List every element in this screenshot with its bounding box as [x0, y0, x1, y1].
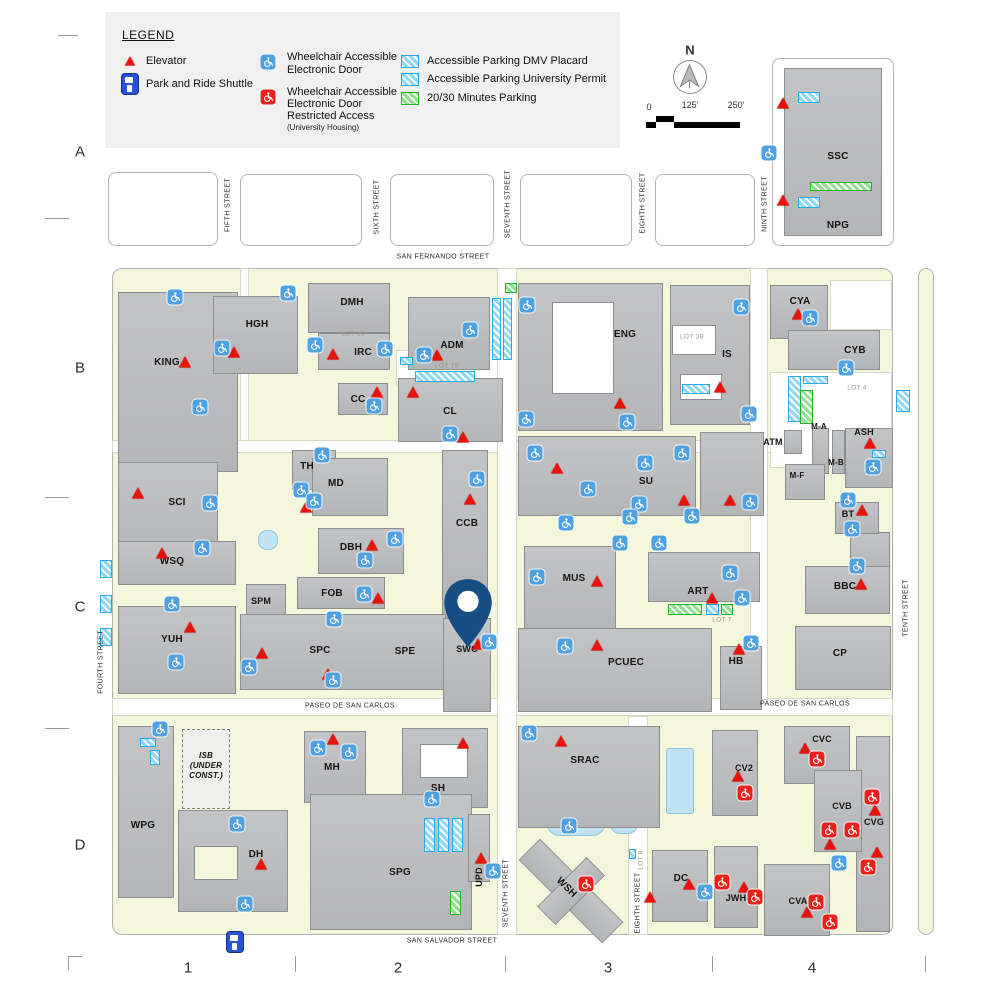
lot-label: LOT 3B — [680, 334, 704, 341]
building-label-ash: ASH — [854, 427, 874, 437]
street-block — [655, 174, 755, 246]
accessible-parking-hatch — [100, 560, 112, 578]
compass-north-label: N — [685, 43, 694, 58]
building — [518, 628, 712, 712]
courtyard — [552, 302, 614, 394]
building-label-dmh: DMH — [340, 298, 363, 308]
street-label: SIXTH STREET — [374, 180, 381, 235]
elevator-icon — [132, 488, 144, 499]
building-label-cvb: CVB — [832, 801, 852, 811]
wheelchair-accessible-icon — [486, 864, 501, 879]
elevator-icon — [228, 347, 240, 358]
elevator-icon — [407, 387, 419, 398]
street-label: EIGHTH STREET — [635, 872, 642, 933]
wheelchair-accessible-icon — [734, 300, 749, 315]
wheelchair-accessible-icon — [803, 311, 818, 326]
street-label: SEVENTH STREET — [503, 859, 510, 927]
street-block — [390, 174, 494, 246]
elevator-icon — [371, 387, 383, 398]
accessible-parking-hatch — [452, 818, 463, 852]
street-label: SAN SALVADOR STREET — [407, 938, 498, 945]
elevator-icon — [475, 853, 487, 864]
timed-parking-hatch — [800, 390, 813, 424]
building-label-cya: CYA — [790, 297, 811, 307]
elevator-icon — [706, 593, 718, 604]
legend-parking-2030: 20/30 Minutes Parking — [427, 92, 536, 104]
street-label: NINTH STREET — [762, 176, 769, 232]
legend-wc-door-1: Wheelchair Accessible — [287, 51, 397, 63]
wheelchair-accessible-icon — [735, 591, 750, 606]
wheelchair-accessible-icon — [839, 361, 854, 376]
wheelchair-accessible-icon — [281, 286, 296, 301]
wheelchair-accessible-icon — [723, 566, 738, 581]
wheelchair-accessible-icon — [367, 399, 382, 414]
street-label: PASEO DE SAN CARLOS — [760, 701, 850, 708]
scale-bar — [656, 116, 674, 122]
street-label: SEVENTH STREET — [505, 170, 512, 238]
elevator-icon — [327, 349, 339, 360]
accessible-parking-hatch — [706, 604, 719, 615]
building-label-cp: CP — [833, 649, 847, 659]
wheelchair-accessible-icon — [261, 55, 276, 70]
elevator-icon — [855, 579, 867, 590]
street-block — [108, 172, 218, 246]
elevator-icon — [864, 438, 876, 449]
building-label-npg: NPG — [827, 221, 849, 231]
wheelchair-restricted-icon — [738, 786, 753, 801]
elevator-icon — [871, 847, 883, 858]
elevator-icon — [856, 505, 868, 516]
parking-2030-icon — [401, 92, 419, 105]
building-label-th: TH — [300, 462, 314, 472]
wheelchair-accessible-icon — [470, 472, 485, 487]
legend-wc-door-2: Electronic Door — [287, 64, 362, 76]
legend-title: LEGEND — [122, 28, 174, 42]
building-label-atm: ATM — [763, 437, 782, 447]
grid-tick — [45, 218, 69, 219]
building — [118, 606, 236, 694]
accessible-parking-hatch — [438, 818, 449, 852]
building-label-cyb: CYB — [844, 346, 866, 356]
accessible-parking-hatch — [503, 298, 512, 360]
accessible-parking-hatch — [682, 384, 710, 394]
elevator-icon — [555, 736, 567, 747]
wheelchair-accessible-icon — [463, 323, 478, 338]
wheelchair-restricted-icon — [261, 90, 276, 105]
grid-tick — [68, 956, 82, 957]
elevator-icon — [732, 771, 744, 782]
building-label-irc: IRC — [354, 348, 372, 358]
wheelchair-accessible-icon — [562, 819, 577, 834]
street-label: SAN FERNANDO STREET — [397, 254, 490, 261]
street-label: FOURTH STREET — [98, 630, 105, 694]
wheelchair-accessible-icon — [378, 342, 393, 357]
lot-label: LOT 8 — [638, 850, 645, 869]
wheelchair-restricted-icon — [845, 823, 860, 838]
timed-parking-hatch — [505, 283, 517, 293]
timed-parking-hatch — [810, 182, 872, 191]
wheelchair-accessible-icon — [388, 532, 403, 547]
wheelchair-accessible-icon — [519, 412, 534, 427]
building-label-spc: SPC — [309, 646, 330, 656]
wheelchair-accessible-icon — [326, 673, 341, 688]
building-label-ccb: CCB — [456, 519, 478, 529]
campus-map: LEGEND Elevator Park and Ride Shuttle Wh… — [0, 0, 1000, 1000]
courtyard — [194, 846, 238, 880]
accessible-parking-hatch — [803, 376, 828, 384]
wheelchair-accessible-icon — [443, 427, 458, 442]
building-label-sci: SCI — [168, 498, 185, 508]
wheelchair-restricted-icon — [748, 890, 763, 905]
wheelchair-accessible-icon — [230, 817, 245, 832]
building-label-cvg: CVG — [864, 817, 884, 827]
building — [788, 330, 880, 370]
legend-panel: LEGEND Elevator Park and Ride Shuttle Wh… — [105, 12, 620, 148]
building-label-spe: SPE — [395, 647, 416, 657]
building-label-wpg: WPG — [131, 821, 156, 831]
building-label-hgh: HGH — [246, 320, 269, 330]
timed-parking-hatch — [721, 604, 733, 615]
wheelchair-accessible-icon — [530, 570, 545, 585]
elevator-icon — [724, 495, 736, 506]
elevator-icon — [614, 398, 626, 409]
grid-label-c: C — [75, 599, 86, 616]
wheelchair-accessible-icon — [169, 655, 184, 670]
parking-univ-icon — [401, 73, 419, 86]
grid-label-b: B — [75, 360, 85, 377]
elevator-icon — [777, 98, 789, 109]
elevator-icon — [591, 640, 603, 651]
building-label-mus: MUS — [563, 574, 586, 584]
wheelchair-restricted-icon — [822, 823, 837, 838]
wheelchair-accessible-icon — [675, 446, 690, 461]
legend-wc-rest-2: Electronic Door — [287, 98, 362, 110]
wheelchair-accessible-icon — [522, 726, 537, 741]
grid-tick — [295, 956, 296, 972]
building — [524, 546, 616, 634]
grid-label-3: 3 — [604, 960, 612, 977]
legend-parking-univ: Accessible Parking University Permit — [427, 73, 606, 85]
wheelchair-accessible-icon — [620, 415, 635, 430]
elevator-icon — [179, 357, 191, 368]
wheelchair-restricted-icon — [823, 915, 838, 930]
grid-tick — [505, 956, 506, 972]
compass-icon — [673, 60, 707, 94]
wheelchair-accessible-icon — [327, 612, 342, 627]
grid-tick — [45, 497, 69, 498]
wheelchair-accessible-icon — [315, 448, 330, 463]
legend-wc-rest-note: (University Housing) — [287, 122, 359, 134]
courtyard — [420, 744, 468, 778]
building-label-cvc: CVC — [812, 734, 832, 744]
building-label-mf: M-F — [790, 471, 805, 481]
wheelchair-accessible-icon — [215, 341, 230, 356]
building-label-adm: ADM — [440, 341, 463, 351]
building-label-cc: CC — [351, 395, 366, 405]
elevator-icon — [457, 738, 469, 749]
shuttle-icon — [226, 931, 244, 953]
wheelchair-restricted-icon — [865, 790, 880, 805]
wheelchair-accessible-icon — [153, 722, 168, 737]
building-label-dbh: DBH — [340, 543, 362, 553]
wheelchair-accessible-icon — [203, 496, 218, 511]
wheelchair-accessible-icon — [581, 482, 596, 497]
wheelchair-accessible-icon — [744, 636, 759, 651]
grid-label-1: 1 — [184, 960, 192, 977]
wheelchair-accessible-icon — [528, 446, 543, 461]
wheelchair-accessible-icon — [841, 493, 856, 508]
building — [310, 794, 472, 930]
elevator-icon — [327, 734, 339, 745]
accessible-parking-hatch — [872, 450, 886, 458]
street-label: PASEO DE SAN CARLOS — [305, 703, 395, 710]
wheelchair-accessible-icon — [613, 536, 628, 551]
accessible-parking-hatch — [896, 390, 910, 412]
wheelchair-accessible-icon — [308, 338, 323, 353]
wheelchair-accessible-icon — [193, 400, 208, 415]
elevator-icon — [824, 839, 836, 850]
shuttle-icon — [121, 73, 139, 95]
campus-ground — [918, 268, 934, 935]
wheelchair-accessible-icon — [559, 516, 574, 531]
building — [518, 436, 696, 516]
wheelchair-accessible-icon — [685, 509, 700, 524]
legend-wc-rest-3: Restricted Access — [287, 110, 374, 122]
street-block — [240, 174, 362, 246]
building-label-srac: SRAC — [570, 756, 599, 766]
street-label: TENTH STREET — [903, 579, 910, 637]
wheelchair-accessible-icon — [652, 536, 667, 551]
scale-125: 125' — [682, 100, 699, 110]
building-label-spm: SPM — [251, 596, 271, 606]
building-label-bt: BT — [842, 509, 854, 519]
accessible-parking-hatch — [629, 849, 636, 859]
accessible-parking-hatch — [424, 818, 435, 852]
walkway — [497, 268, 517, 935]
wheelchair-accessible-icon — [195, 541, 210, 556]
scale-250: 250' — [728, 100, 745, 110]
grid-tick — [58, 35, 78, 36]
wheelchair-accessible-icon — [238, 897, 253, 912]
building-label-spg: SPG — [389, 868, 411, 878]
wheelchair-accessible-icon — [743, 495, 758, 510]
wheelchair-accessible-icon — [358, 553, 373, 568]
building — [784, 430, 802, 454]
wheelchair-accessible-icon — [866, 460, 881, 475]
location-pin[interactable] — [437, 577, 499, 654]
elevator-icon — [799, 743, 811, 754]
wheelchair-accessible-icon — [357, 587, 372, 602]
building-label-yuh: YUH — [161, 635, 183, 645]
elevator-icon — [464, 494, 476, 505]
scale-bar — [646, 122, 656, 128]
street-block — [520, 174, 632, 246]
elevator-icon — [372, 593, 384, 604]
building — [312, 458, 388, 516]
accessible-parking-hatch — [150, 750, 160, 765]
accessible-parking-hatch — [492, 298, 501, 360]
elevator-icon — [777, 195, 789, 206]
building-label-is: IS — [722, 350, 732, 360]
wheelchair-accessible-icon — [638, 456, 653, 471]
accessible-parking-hatch — [415, 371, 475, 382]
building — [118, 726, 174, 898]
grid-tick — [925, 956, 926, 972]
building-label-pcuec: PCUEC — [608, 658, 644, 668]
building-label-fob: FOB — [321, 589, 343, 599]
building-label-hb: HB — [729, 657, 744, 667]
accessible-parking-hatch — [140, 738, 156, 747]
grid-tick — [45, 728, 69, 729]
building — [308, 283, 390, 333]
building-label-cva: CVA — [789, 896, 808, 906]
elevator-icon — [591, 576, 603, 587]
elevator-icon — [551, 463, 563, 474]
building-label-md: MD — [328, 479, 344, 489]
building-label-jwh: JWH — [726, 893, 747, 903]
legend-elevator-label: Elevator — [146, 55, 186, 67]
building-label-cl: CL — [443, 407, 457, 417]
wheelchair-accessible-icon — [762, 146, 777, 161]
elevator-icon — [714, 382, 726, 393]
wheelchair-accessible-icon — [425, 792, 440, 807]
scale-bar — [674, 122, 740, 128]
building-label-wsq: WSQ — [160, 557, 185, 567]
wheelchair-accessible-icon — [832, 856, 847, 871]
elevator-icon — [678, 495, 690, 506]
accessible-parking-hatch — [798, 197, 820, 208]
wheelchair-accessible-icon — [742, 407, 757, 422]
wheelchair-restricted-icon — [715, 875, 730, 890]
building-label-upd: UPD — [474, 867, 484, 887]
elevator-icon — [125, 57, 135, 66]
wheelchair-accessible-icon — [307, 494, 322, 509]
wheelchair-accessible-icon — [242, 660, 257, 675]
legend-parking-dmv: Accessible Parking DMV Placard — [427, 55, 588, 67]
wheelchair-accessible-icon — [698, 885, 713, 900]
grid-tick — [712, 956, 713, 972]
wheelchair-accessible-icon — [520, 298, 535, 313]
lot-label: LOT 1B — [435, 363, 459, 370]
building-label-su: SU — [639, 477, 653, 487]
building-label-mh: MH — [324, 763, 340, 773]
wheelchair-accessible-icon — [417, 348, 432, 363]
wheelchair-accessible-icon — [558, 639, 573, 654]
accessible-parking-hatch — [798, 92, 820, 103]
wheelchair-restricted-icon — [809, 895, 824, 910]
building-label-ssc: SSC — [827, 152, 848, 162]
elevator-icon — [156, 548, 168, 559]
lot-label: LOT 15 — [341, 331, 364, 338]
walkway — [830, 280, 892, 330]
wheelchair-accessible-icon — [845, 522, 860, 537]
legend-wc-rest-1: Wheelchair Accessible — [287, 86, 397, 98]
elevator-icon — [683, 879, 695, 890]
grid-label-4: 4 — [808, 960, 816, 977]
building — [518, 726, 660, 828]
parking-dmv-icon — [401, 55, 419, 68]
building-label-mb: M-B — [828, 458, 844, 468]
building-label-bbc: BBC — [834, 582, 856, 592]
building — [213, 296, 298, 374]
wheelchair-accessible-icon — [168, 290, 183, 305]
building — [785, 464, 825, 500]
building-label-ma: M-A — [811, 422, 827, 432]
elevator-icon — [256, 648, 268, 659]
timed-parking-hatch — [450, 891, 461, 915]
wheelchair-accessible-icon — [623, 510, 638, 525]
accessible-parking-hatch — [100, 595, 112, 613]
scale-0: 0 — [646, 102, 651, 112]
legend-shuttle-label: Park and Ride Shuttle — [146, 78, 253, 90]
wheelchair-accessible-icon — [342, 745, 357, 760]
grid-label-2: 2 — [394, 960, 402, 977]
grid-label-d: D — [75, 837, 86, 854]
elevator-icon — [255, 859, 267, 870]
wheelchair-accessible-icon — [311, 741, 326, 756]
elevator-icon — [457, 432, 469, 443]
pool — [666, 748, 694, 814]
building-label-eng: ENG — [614, 330, 636, 340]
building-label: ISB(UNDERCONST.) — [189, 751, 223, 781]
grid-tick — [68, 956, 69, 970]
elevator-icon — [644, 892, 656, 903]
wheelchair-restricted-icon — [579, 877, 594, 892]
wheelchair-restricted-icon — [810, 752, 825, 767]
street-label: EIGHTH STREET — [640, 172, 647, 233]
building-label-king: KING — [154, 358, 180, 368]
elevator-icon — [431, 350, 443, 361]
elevator-icon — [184, 622, 196, 633]
elevator-icon — [366, 540, 378, 551]
building — [814, 770, 862, 852]
accessible-parking-hatch — [400, 357, 413, 365]
grid-label-a: A — [75, 144, 85, 161]
pool — [258, 530, 278, 550]
wheelchair-accessible-icon — [165, 597, 180, 612]
wheelchair-restricted-icon — [861, 860, 876, 875]
elevator-icon — [869, 805, 881, 816]
timed-parking-hatch — [668, 604, 702, 615]
wheelchair-accessible-icon — [850, 559, 865, 574]
street-label: FIFTH STREET — [225, 178, 232, 232]
lot-label: LOT 4 — [847, 385, 866, 392]
lot-label: LOT 7 — [712, 617, 731, 624]
